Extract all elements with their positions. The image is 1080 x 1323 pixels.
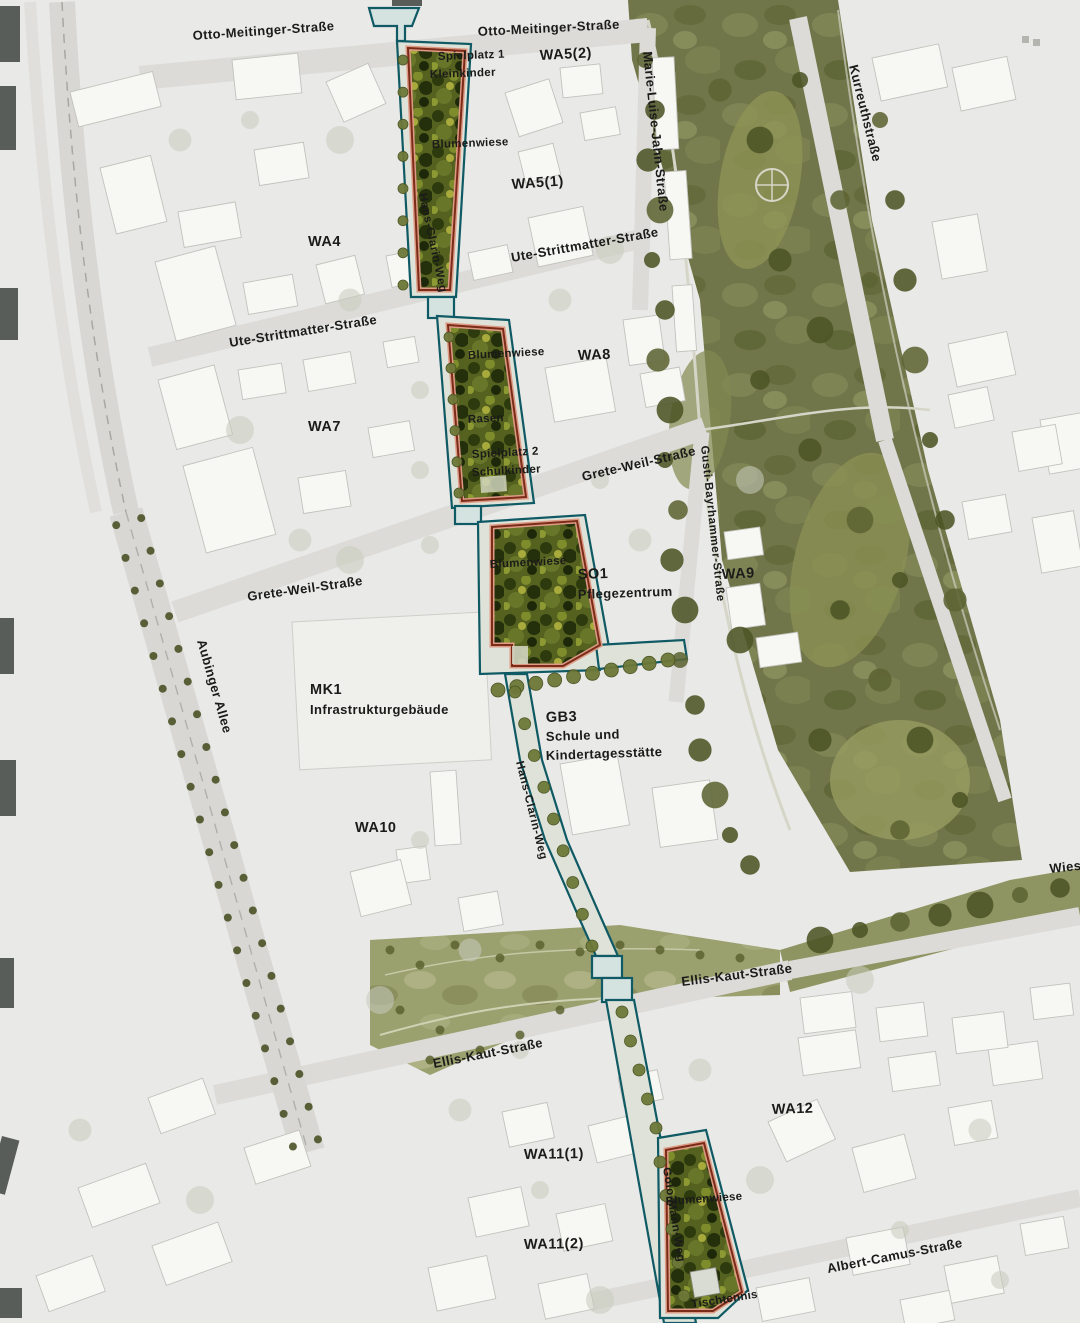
allee-tree	[305, 1103, 313, 1111]
allee-tree	[258, 939, 266, 947]
allee-tree	[289, 1143, 297, 1151]
park-tree	[943, 588, 966, 611]
corridor-tree	[398, 55, 408, 65]
allee-tree	[224, 914, 232, 922]
building	[545, 357, 616, 422]
corridor-tree	[642, 656, 656, 670]
park-tree	[655, 300, 675, 320]
tree	[366, 986, 394, 1014]
building	[1012, 424, 1062, 471]
allee-tree	[249, 907, 257, 915]
tree	[991, 1271, 1009, 1289]
tree	[736, 466, 764, 494]
corridor-tree	[538, 781, 550, 793]
meadow-tree	[436, 1026, 445, 1035]
park-tree	[808, 728, 831, 751]
corridor-tree	[616, 1006, 628, 1018]
park-tree	[922, 432, 938, 448]
park-tree	[890, 912, 910, 932]
tree	[339, 289, 362, 312]
tree	[846, 966, 874, 994]
park-tree	[847, 507, 874, 534]
corridor-tree	[529, 676, 543, 690]
allee-tree	[202, 743, 210, 751]
corridor-tree	[446, 363, 456, 373]
park-tree	[807, 927, 834, 954]
allee-tree	[267, 972, 275, 980]
area-label-mk1-code: MK1	[310, 682, 342, 698]
park-tree	[868, 668, 891, 691]
meadow-tree	[736, 954, 745, 963]
allee-tree	[215, 881, 223, 889]
corridor-tree	[491, 683, 505, 697]
building	[254, 142, 309, 185]
corridor-tree	[398, 216, 408, 226]
corridor-tree	[557, 845, 569, 857]
tree	[411, 461, 429, 479]
meadow-tree	[696, 951, 705, 960]
park-tree	[890, 820, 910, 840]
edge-building	[0, 1288, 22, 1318]
building	[724, 527, 764, 560]
allee-tree	[184, 678, 192, 686]
park-tree	[907, 727, 934, 754]
allee-tree	[280, 1110, 288, 1118]
park-tree	[668, 500, 688, 520]
tree	[449, 1099, 472, 1122]
corridor-tree	[448, 394, 458, 404]
area-label-wa5-2: WA5(2)	[539, 45, 592, 64]
park-tree	[935, 510, 955, 530]
tree	[289, 529, 312, 552]
park-tree	[672, 597, 699, 624]
park-tree	[768, 248, 791, 271]
tree	[411, 381, 429, 399]
allee-tree	[295, 1070, 303, 1078]
meadow-tree	[536, 941, 545, 950]
label-playground1-line2: Kleinkinder	[430, 67, 497, 81]
area-label-wa12: WA12	[772, 1101, 814, 1118]
corridor-tree	[528, 750, 540, 762]
label-playground1-line1: Spielplatz 1	[438, 49, 506, 63]
meadow-tree	[416, 961, 425, 970]
allee-tree	[112, 521, 120, 529]
corridor-tree	[625, 1035, 637, 1047]
tree	[226, 416, 254, 444]
meadow-tree	[556, 1006, 565, 1015]
allee-tree	[261, 1044, 269, 1052]
building	[800, 992, 856, 1034]
allee-tree	[168, 717, 176, 725]
park-tree	[902, 347, 929, 374]
allee-tree	[221, 808, 229, 816]
meadow-tree	[576, 948, 585, 957]
edge-building	[0, 86, 16, 150]
allee-tree	[122, 554, 130, 562]
area-label-gb3-use-1: Schule und	[546, 726, 621, 744]
area-label-wa4: WA4	[308, 234, 341, 250]
tree	[746, 1166, 774, 1194]
corridor-tree	[452, 457, 462, 467]
building	[580, 107, 620, 141]
edge-building	[0, 288, 18, 340]
allee-tree	[240, 874, 248, 882]
area-label-wa7: WA7	[308, 419, 341, 435]
edge-building	[0, 6, 20, 62]
building	[560, 754, 630, 835]
tree	[549, 289, 572, 312]
park-tree	[708, 78, 731, 101]
park-tree	[646, 348, 669, 371]
site-plan-map: Otto-Meitinger-Straße Otto-Meitinger-Str…	[0, 0, 1080, 1323]
park-tree	[727, 627, 754, 654]
tree	[969, 1119, 992, 1142]
meadow-tree	[396, 1006, 405, 1015]
corridor-tree	[398, 248, 408, 258]
park-tree	[952, 792, 968, 808]
building	[238, 363, 286, 400]
building	[888, 1051, 940, 1091]
park-tree	[862, 272, 878, 288]
building	[383, 336, 419, 367]
park-tree	[967, 892, 994, 919]
corridor-tree	[576, 908, 588, 920]
building	[672, 285, 697, 352]
corridor-tree	[586, 940, 598, 952]
corridor-tree	[661, 653, 675, 667]
building	[952, 1012, 1008, 1054]
corridor-tree	[567, 670, 581, 684]
meadow-tree	[656, 946, 665, 955]
corridor-tree	[398, 280, 408, 290]
allee-tree	[165, 612, 173, 620]
allee-tree	[193, 710, 201, 718]
corridor-tree	[642, 1093, 654, 1105]
edge-building	[392, 0, 422, 6]
area-label-wa8: WA8	[578, 347, 611, 364]
site-plan-svg: Otto-Meitinger-Straße Otto-Meitinger-Str…	[0, 0, 1080, 1323]
park-tree	[657, 397, 684, 424]
corridor-tree	[398, 87, 408, 97]
allee-tree	[137, 514, 145, 522]
corridor-tree	[454, 488, 464, 498]
allee-tree	[131, 587, 139, 595]
allee-tree	[242, 979, 250, 987]
tree	[459, 939, 482, 962]
allee-tree	[277, 1005, 285, 1013]
tree	[326, 126, 354, 154]
allee-tree	[149, 652, 157, 660]
park-tree	[807, 317, 834, 344]
allee-tree	[187, 783, 195, 791]
allee-tree	[252, 1012, 260, 1020]
allee-tree	[159, 685, 167, 693]
tree	[186, 1186, 214, 1214]
allee-tree	[233, 946, 241, 954]
park-tree	[1050, 878, 1070, 898]
street-label-wies-truncated: Wies	[1049, 858, 1080, 876]
allee-tree	[147, 547, 155, 555]
park-tree	[702, 782, 729, 809]
area-label-wa11-1: WA11(1)	[524, 1146, 584, 1163]
area-label-so1-code: SO1	[578, 566, 609, 583]
meadow-tree	[386, 946, 395, 955]
tree	[891, 1221, 909, 1239]
park-tree	[750, 370, 770, 390]
building	[1030, 983, 1074, 1020]
park-tree	[740, 855, 760, 875]
corridor-tree	[509, 686, 521, 698]
corridor-tree	[633, 1064, 645, 1076]
park-tree	[885, 190, 905, 210]
edge-building	[0, 618, 14, 674]
meadow-tree	[496, 954, 505, 963]
corridor-tree	[548, 813, 560, 825]
tree	[629, 529, 652, 552]
park-tree	[792, 72, 808, 88]
area-label-gb3-code: GB3	[546, 709, 578, 726]
tree	[336, 546, 364, 574]
building	[726, 583, 766, 629]
park-tree	[852, 922, 868, 938]
park-tree	[688, 738, 711, 761]
park-tree	[798, 438, 821, 461]
building	[756, 632, 802, 668]
allee-tree	[314, 1135, 322, 1143]
tree	[421, 536, 439, 554]
corridor-tree	[678, 1290, 690, 1302]
building	[458, 891, 503, 931]
edge-building	[0, 958, 14, 1008]
area-label-wa9: WA9	[721, 565, 755, 583]
park-tree	[1012, 887, 1028, 903]
edge-building	[0, 760, 16, 816]
building	[798, 1030, 861, 1076]
allee-tree	[212, 776, 220, 784]
corridor-tree	[519, 718, 531, 730]
park-tree	[747, 127, 774, 154]
tree	[689, 1059, 712, 1082]
corridor-tree	[398, 151, 408, 161]
allee-tree	[270, 1077, 278, 1085]
tree	[411, 831, 429, 849]
allee-tree	[205, 848, 213, 856]
tree	[531, 1181, 549, 1199]
meadow-tree	[616, 941, 625, 950]
building	[232, 53, 302, 100]
area-label-wa11-2: WA11(2)	[524, 1236, 584, 1253]
tree	[586, 1286, 614, 1314]
building	[298, 470, 351, 513]
corridor-tree	[444, 332, 454, 342]
corridor-tree	[450, 426, 460, 436]
allee-tree	[286, 1037, 294, 1045]
building	[962, 494, 1012, 539]
tree	[169, 129, 192, 152]
building	[430, 770, 461, 846]
label-lawn: Rasen	[468, 412, 505, 426]
allee-tree	[174, 645, 182, 653]
building	[876, 1002, 928, 1042]
park-tree	[722, 827, 738, 843]
park-tree	[830, 600, 850, 620]
park-tree	[892, 572, 908, 588]
corridor-tree	[623, 660, 637, 674]
tree	[241, 111, 259, 129]
meadow-tree	[451, 941, 460, 950]
allee-tree	[156, 579, 164, 587]
corridor-tree	[567, 877, 579, 889]
corridor-tree	[585, 666, 599, 680]
allee-tree	[230, 841, 238, 849]
park-tree	[644, 252, 660, 268]
tree	[69, 1119, 92, 1142]
park-tree	[685, 695, 705, 715]
corridor-tree	[398, 184, 408, 194]
corridor-tree	[650, 1122, 662, 1134]
area-label-mk1-use: Infrastrukturgebäude	[310, 702, 449, 717]
corridor-tree	[398, 119, 408, 129]
park-tree	[893, 268, 916, 291]
park-tree	[660, 548, 683, 571]
building	[932, 214, 987, 279]
corridor-tree	[604, 663, 618, 677]
corridor-tree	[548, 673, 562, 687]
park-tree	[928, 903, 951, 926]
allee-tree	[177, 750, 185, 758]
allee-tree	[196, 816, 204, 824]
corridor-tree	[654, 1156, 666, 1168]
area-label-wa10: WA10	[355, 820, 397, 836]
allee-tree	[140, 619, 148, 627]
park-tree	[830, 190, 850, 210]
building	[560, 64, 603, 98]
